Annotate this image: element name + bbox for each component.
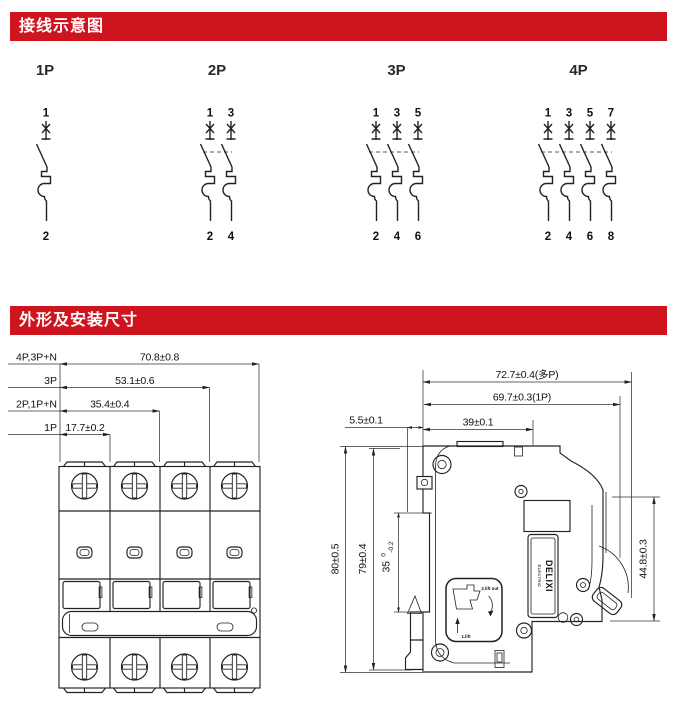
pole-config-label: 1P (44, 422, 57, 434)
pole-count-label: 3P (387, 62, 405, 79)
tie-bar-pin (251, 608, 256, 613)
terminal-symbol (586, 121, 595, 140)
trip-element-symbol (582, 167, 594, 221)
switch-blade (602, 144, 613, 167)
dim-80: 80±0.5 (330, 543, 342, 574)
breaker-module (213, 462, 256, 693)
dimension-value: 70.8±0.8 (140, 352, 180, 364)
trip-element-symbol (368, 167, 381, 221)
trip-element-symbol (561, 167, 574, 221)
side-hole-upper-inner (519, 489, 523, 493)
terminal-number-bottom: 4 (228, 231, 235, 243)
terminal-number-top: 5 (587, 108, 594, 120)
window-slot (127, 547, 142, 558)
breaker-front-view (59, 462, 260, 693)
side-rivet-right-inner (581, 583, 586, 588)
wiring-diagram-4P: 4P12345678 (539, 62, 616, 243)
trip-element-symbol (38, 167, 50, 221)
terminal-number-top: 3 (566, 108, 572, 120)
toggle-base (163, 582, 200, 609)
breaker-side-view: DELIXI ELECTRIC 2.lift out 1.lift (406, 442, 629, 673)
terminal-number-top: 1 (545, 108, 552, 120)
side-vent-hole-2 (571, 614, 583, 626)
terminal-symbol (206, 121, 215, 140)
dim-35-tol-upper: 0 (381, 553, 388, 557)
pole-symbol: 78 (602, 108, 616, 244)
side-rivet-lower (517, 623, 532, 638)
dimension-value: 35.4±0.4 (90, 399, 130, 411)
dim-72-7: 72.7±0.4(多P) (496, 368, 559, 381)
window-slot (77, 547, 92, 558)
pole-symbol: 56 (409, 108, 423, 244)
pole-config-label: 2P,1P+N (16, 399, 57, 411)
pole-symbol: 12 (37, 108, 51, 244)
switch-blade (388, 144, 399, 167)
switch-blade (37, 144, 48, 167)
side-screw-top-inner (438, 460, 446, 468)
switch-blade (581, 144, 592, 167)
terminal-symbol (227, 121, 236, 140)
terminal-symbol (393, 121, 402, 140)
inset-swing-arrowhead (488, 611, 494, 617)
switch-blade (539, 144, 550, 167)
top-clip-tab (164, 462, 206, 467)
wiring-diagrams: 1P122P12343P1234564P12345678 (36, 62, 616, 243)
pole-config-label: 3P (44, 375, 57, 387)
window-slot (227, 547, 242, 558)
trip-element-symbol (540, 167, 553, 221)
terminal-symbol (565, 121, 574, 140)
screw-slot-v (232, 474, 236, 498)
din-clip-pointer (408, 596, 422, 614)
trip-element-symbol (389, 167, 401, 221)
front-view-width-dimensions: 4P,3P+N70.8±0.83P53.1±0.62P,1P+N35.4±0.4… (8, 352, 259, 463)
terminal-number-bottom: 2 (545, 231, 551, 243)
terminal-number-bottom: 6 (415, 231, 421, 243)
switch-blade (367, 144, 378, 167)
terminal-number-bottom: 4 (566, 231, 573, 243)
inset-swing-arrow (489, 596, 493, 612)
inset-step2-label: 2.lift out (481, 586, 499, 591)
inset-mini-breaker (453, 585, 480, 609)
pole-symbol: 34 (388, 108, 402, 244)
toggle-base (213, 582, 250, 609)
terminal-number-top: 7 (608, 108, 614, 120)
pole-count-label: 2P (208, 62, 226, 79)
pole-count-label: 1P (36, 62, 54, 79)
terminal-symbol (544, 121, 553, 140)
bottom-clip-tab (214, 688, 256, 693)
window-slot-inner (130, 550, 139, 556)
width-dim-row: 3P53.1±0.6 (8, 375, 210, 462)
label-recess (524, 501, 570, 532)
dim-35-value: 35 (381, 561, 393, 573)
wiring-diagram-3P: 3P123456 (367, 62, 423, 243)
pole-count-label: 4P (569, 62, 587, 79)
pole-symbol: 34 (560, 108, 574, 244)
side-rivet-right (577, 579, 590, 592)
terminal-number-bottom: 2 (207, 231, 213, 243)
screw-slot-v (182, 655, 186, 679)
switch-blade (222, 144, 233, 167)
width-dim-row: 1P17.7±0.2 (8, 422, 110, 462)
terminal-number-top: 3 (228, 108, 234, 120)
screw-slot-v (132, 474, 136, 498)
terminal-symbol (372, 121, 381, 140)
dimension-value: 17.7±0.2 (65, 422, 105, 434)
pole-config-label: 4P,3P+N (16, 352, 57, 364)
side-rivet-lower-inner (521, 627, 527, 633)
switch-blade (409, 144, 420, 167)
terminal-symbol (414, 121, 423, 140)
side-screw-bottom (432, 644, 449, 661)
wiring-diagram-2P: 2P1234 (201, 62, 236, 243)
trip-element-symbol (410, 167, 422, 221)
dim-35: 35 0 -0.2 (373, 541, 396, 572)
pole-symbol: 12 (367, 108, 381, 244)
breaker-module (63, 462, 106, 693)
dim-39: 39±0.1 (463, 417, 494, 429)
terminal-number-top: 1 (207, 108, 214, 120)
breaker-module (113, 462, 156, 693)
trip-element-symbol (202, 167, 215, 221)
din-clip-lower (406, 612, 424, 670)
screw-slot-v (232, 655, 236, 679)
dim-69-7: 69.7±0.3(1P) (493, 392, 551, 404)
din-clip-upper (417, 477, 432, 490)
terminal-number-bottom: 8 (608, 231, 615, 243)
window-slot-inner (230, 550, 239, 556)
extension-lines (340, 370, 660, 673)
window-slot-inner (180, 550, 189, 556)
top-clip-tab (214, 462, 256, 467)
switch-blade (560, 144, 571, 167)
side-latch-slot (515, 447, 523, 456)
wiring-diagram-1P: 1P12 (36, 62, 54, 243)
side-vent-hole-1 (558, 613, 568, 623)
toggle-handle (590, 585, 623, 616)
terminal-number-top: 1 (43, 108, 50, 120)
toggle-base (113, 582, 150, 609)
pole-symbol: 12 (539, 108, 553, 244)
terminal-number-top: 5 (415, 108, 422, 120)
pole-symbol: 34 (222, 108, 236, 244)
screw-slot-v (132, 655, 136, 679)
terminal-symbol (607, 121, 616, 140)
dim-79: 79±0.4 (357, 543, 369, 574)
terminal-number-bottom: 4 (394, 231, 401, 243)
dimension-value: 53.1±0.6 (115, 375, 155, 387)
trip-element-symbol (603, 167, 616, 221)
terminal-number-top: 3 (394, 108, 400, 120)
technical-drawing-canvas: 1P122P12343P1234564P12345678 4P,3P+N70.8… (0, 0, 683, 704)
side-bottom-slot-inner (497, 653, 502, 662)
top-clip-tab (64, 462, 106, 467)
brand-text-group: DELIXI ELECTRIC (537, 560, 554, 592)
bottom-clip-tab (164, 688, 206, 693)
brand-name: DELIXI (544, 560, 554, 592)
terminal-symbol (42, 121, 51, 140)
toggle-base (63, 582, 100, 609)
screw-slot-v (82, 474, 86, 498)
side-outline-main (423, 446, 603, 672)
inset-step1-label: 1.lift (462, 634, 472, 639)
terminal-number-bottom: 2 (373, 231, 379, 243)
bottom-clip-tab (64, 688, 106, 693)
mounting-inset: 2.lift out 1.lift (446, 579, 502, 642)
terminal-number-bottom: 6 (587, 231, 593, 243)
terminal-number-top: 1 (373, 108, 380, 120)
dim-35-tol-lower: -0.2 (388, 541, 395, 553)
side-hole-upper (515, 486, 527, 498)
inset-up-arrowhead (455, 618, 459, 625)
terminal-number-bottom: 2 (43, 231, 49, 243)
breaker-module (163, 462, 206, 693)
switch-blade (201, 144, 212, 167)
side-view-dimensions: 72.7±0.4(多P) 69.7±0.3(1P) 5.5±0.1 39±0.1… (330, 368, 661, 673)
screw-slot-v (82, 655, 86, 679)
window-slot-inner (80, 550, 89, 556)
pole-symbol: 12 (201, 108, 215, 244)
handle-tie-bar (63, 608, 257, 636)
side-screw-bottom-inner (436, 649, 444, 657)
brand-sub: ELECTRIC (537, 565, 541, 588)
din-clip-upper-hole (421, 479, 427, 485)
bottom-clip-tab (114, 688, 156, 693)
dim-5-5: 5.5±0.1 (349, 415, 383, 427)
catalog-page: 接线示意图 外形及安装尺寸 1P122P12343P1234564P123456… (0, 0, 683, 704)
dim-44-8: 44.8±0.3 (638, 539, 650, 579)
window-slot (177, 547, 192, 558)
pole-symbol: 56 (581, 108, 595, 244)
top-clip-tab (114, 462, 156, 467)
screw-slot-v (182, 474, 186, 498)
trip-element-symbol (223, 167, 236, 221)
